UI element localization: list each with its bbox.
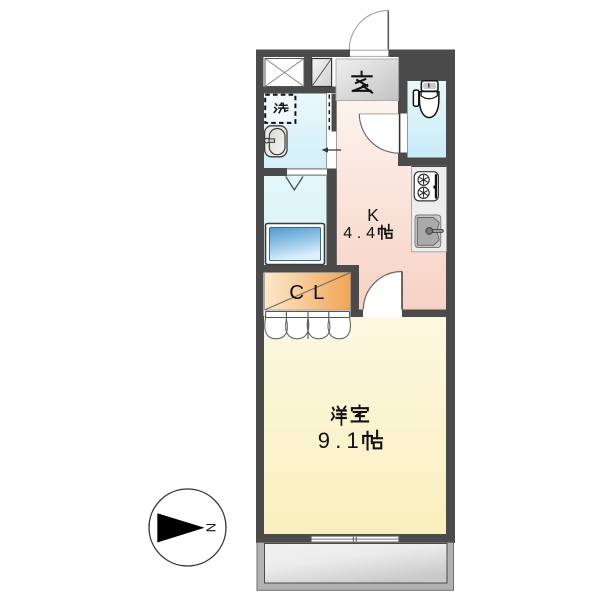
svg-text:N: N bbox=[204, 523, 219, 532]
svg-text:9.1: 9.1 bbox=[318, 428, 364, 453]
svg-text:CL: CL bbox=[289, 281, 333, 304]
svg-text:K: K bbox=[367, 205, 379, 225]
svg-text:4.4: 4.4 bbox=[343, 225, 380, 242]
